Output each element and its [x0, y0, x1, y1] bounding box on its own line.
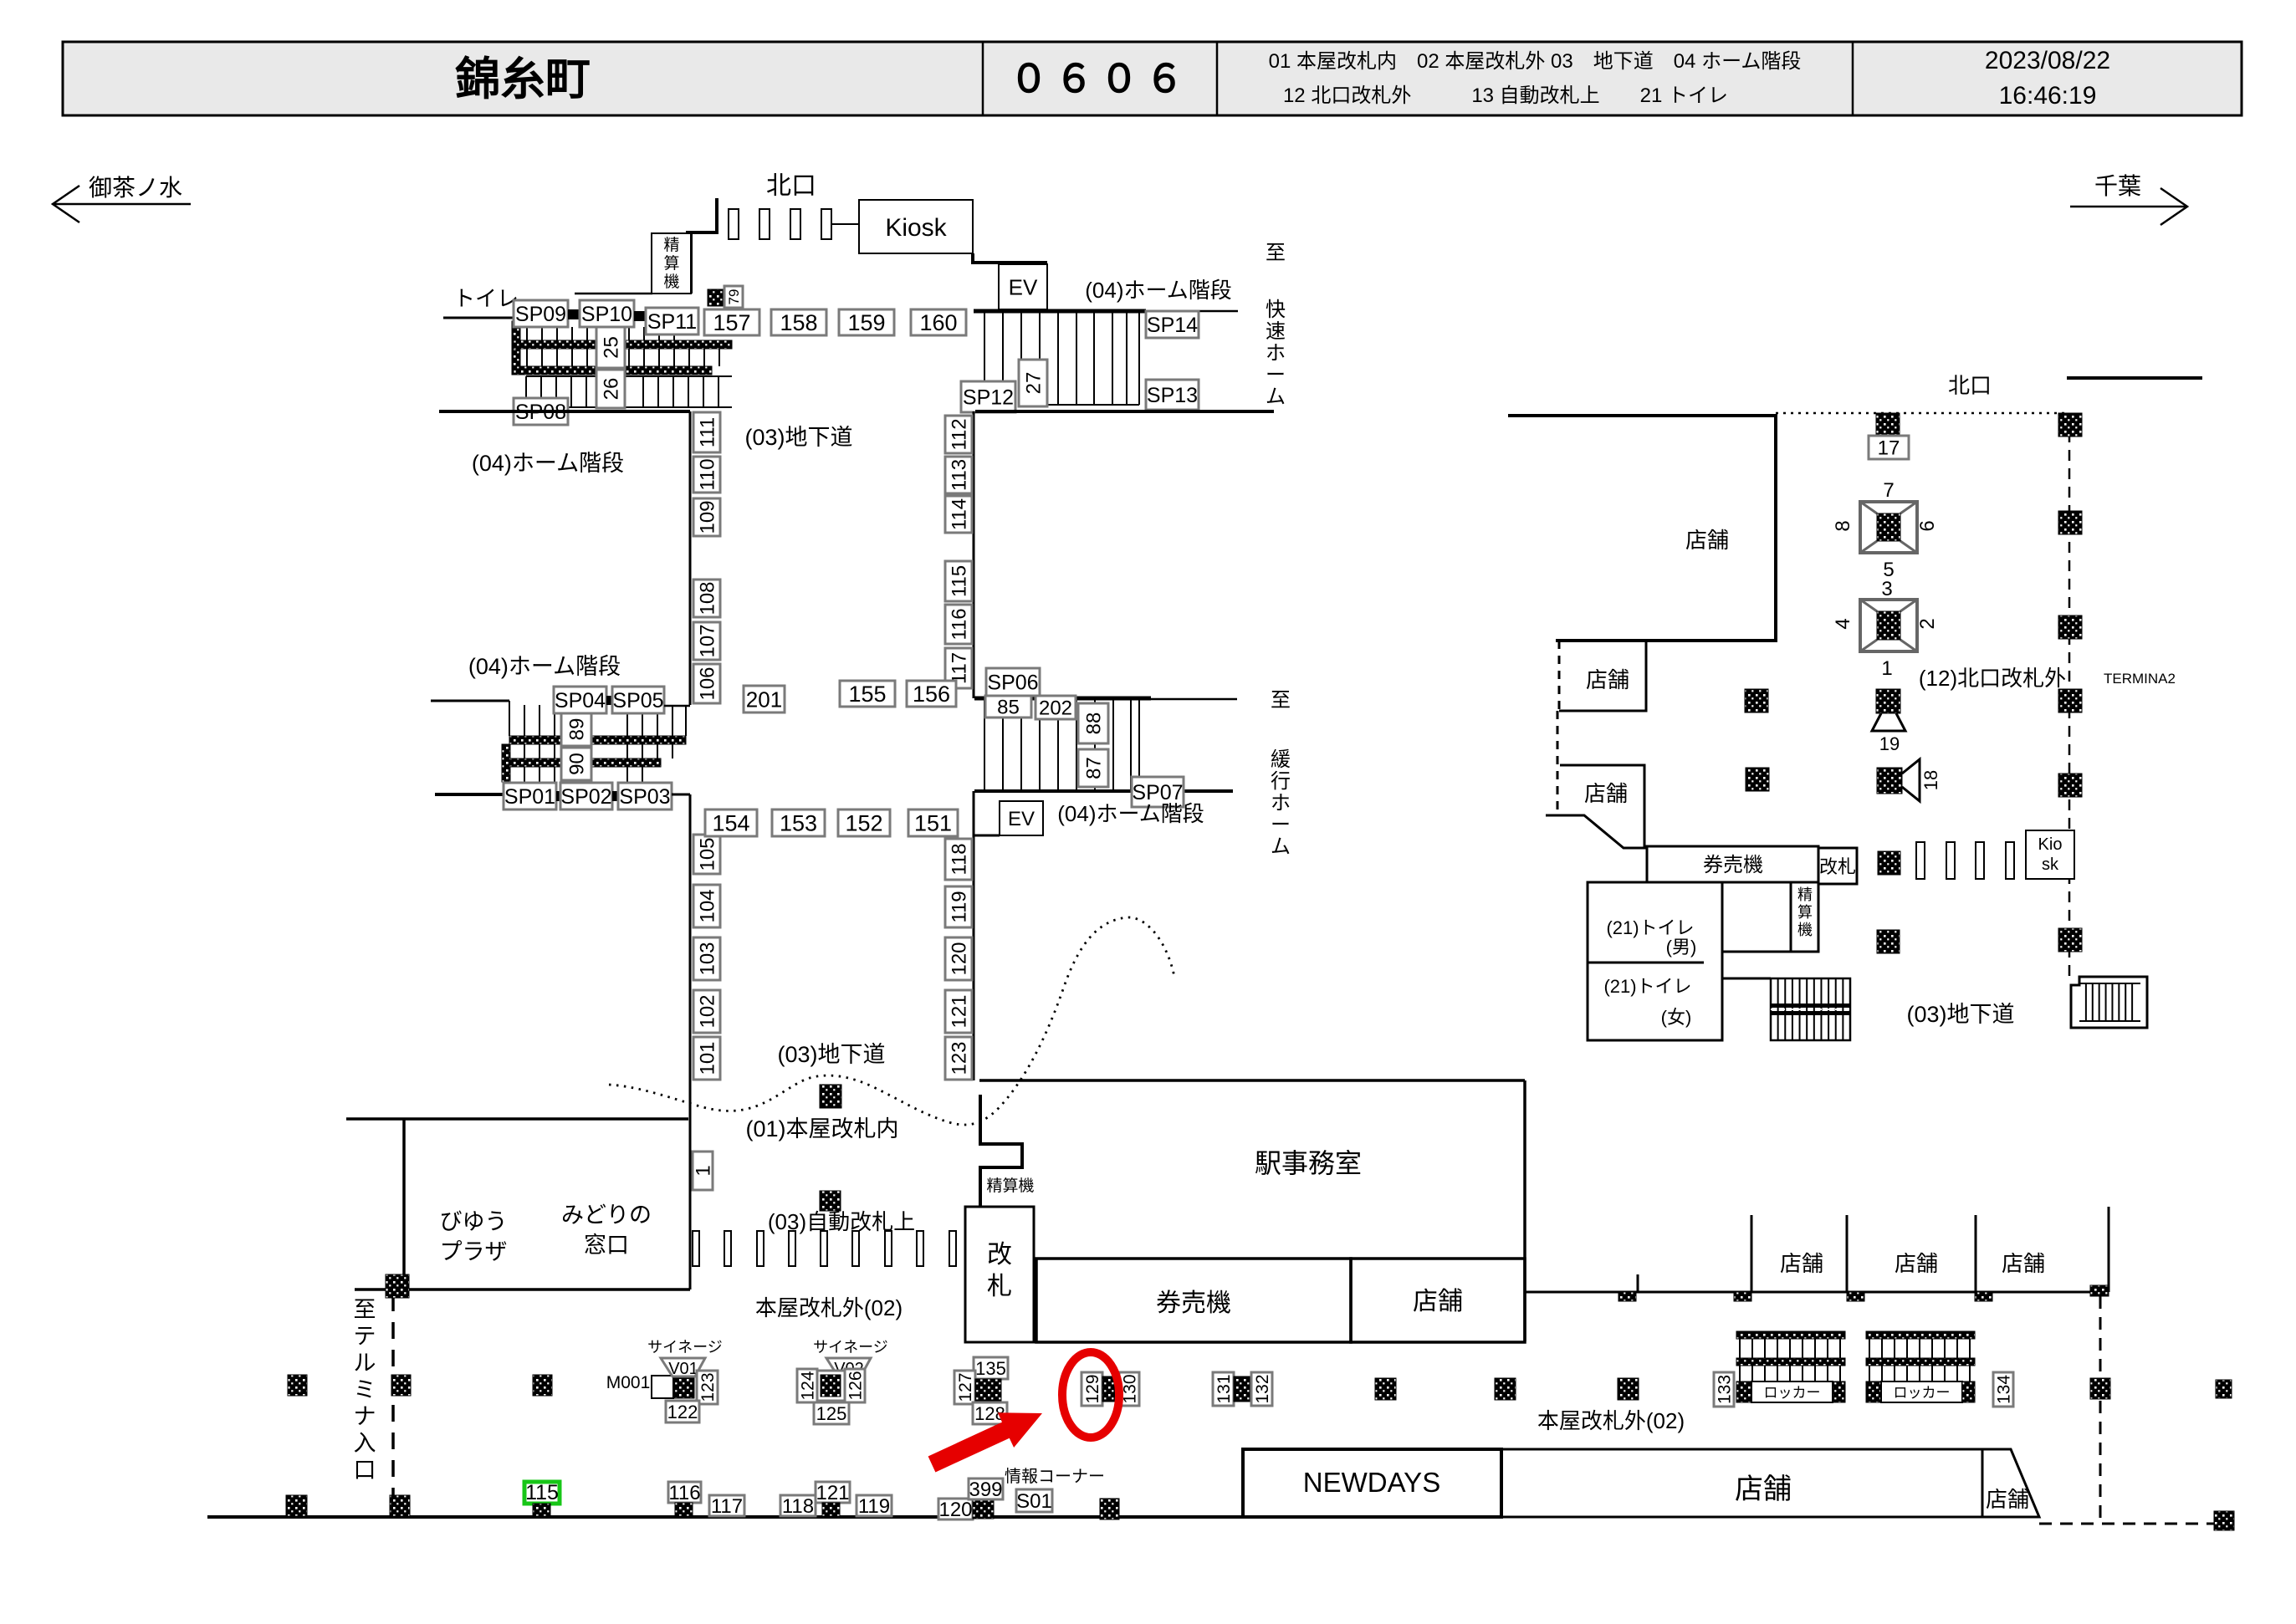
- svg-text:1: 1: [693, 1165, 715, 1176]
- svg-text:12 北口改札外 13 自動改札上 21 トイレ: 12 北口改札外 13 自動改札上 21 トイレ: [1283, 84, 1728, 107]
- svg-text:160: 160: [919, 310, 957, 335]
- svg-text:店舗: 店舗: [1986, 1487, 2029, 1512]
- svg-text:SP02: SP02: [560, 785, 611, 809]
- svg-text:3: 3: [1881, 578, 1892, 600]
- svg-text:千葉: 千葉: [2094, 173, 2141, 199]
- svg-text:御茶ノ水: 御茶ノ水: [89, 175, 182, 201]
- svg-text:122: 122: [667, 1402, 698, 1422]
- svg-text:201: 201: [746, 687, 782, 712]
- svg-text:SP05: SP05: [612, 689, 663, 712]
- svg-text:117: 117: [949, 652, 971, 684]
- svg-text:至: 至: [354, 1297, 376, 1322]
- svg-text:151: 151: [914, 811, 952, 836]
- svg-text:109: 109: [697, 500, 719, 534]
- svg-text:算: 算: [663, 254, 679, 273]
- svg-text:SP04: SP04: [555, 689, 606, 712]
- svg-text:SP09: SP09: [515, 303, 566, 326]
- svg-text:(男): (男): [1666, 937, 1697, 958]
- svg-text:(21)トイレ: (21)トイレ: [1606, 917, 1694, 938]
- svg-text:115: 115: [949, 565, 971, 597]
- svg-text:TERMINA2: TERMINA2: [2104, 671, 2176, 687]
- svg-text:機: 機: [1797, 922, 1813, 938]
- svg-text:105: 105: [697, 837, 719, 871]
- svg-text:27: 27: [1023, 372, 1046, 395]
- svg-text:116: 116: [668, 1482, 700, 1504]
- svg-text:119: 119: [858, 1495, 890, 1518]
- svg-text:びゆう: びゆう: [440, 1209, 508, 1234]
- svg-text:Kio: Kio: [2038, 835, 2063, 854]
- svg-text:(03)地下道: (03)地下道: [1906, 1002, 2014, 1027]
- svg-text:サイネージ: サイネージ: [813, 1339, 888, 1356]
- svg-text:至: 至: [1271, 689, 1291, 712]
- svg-text:SP11: SP11: [647, 310, 697, 334]
- svg-text:1: 1: [1881, 657, 1892, 680]
- svg-text:店舗: 店舗: [1413, 1288, 1463, 1315]
- svg-text:SP12: SP12: [963, 386, 1014, 410]
- svg-text:104: 104: [697, 889, 719, 922]
- svg-text:EV: EV: [1009, 274, 1038, 299]
- svg-text:6: 6: [1916, 520, 1939, 531]
- svg-text:錦糸町: 錦糸町: [455, 54, 591, 105]
- svg-text:8: 8: [1832, 520, 1854, 531]
- svg-text:プラザ: プラザ: [440, 1239, 508, 1264]
- svg-text:店舗: 店舗: [1735, 1473, 1792, 1505]
- svg-text:85: 85: [997, 697, 1020, 719]
- svg-text:S01: S01: [1016, 1490, 1052, 1513]
- svg-text:159: 159: [847, 310, 885, 335]
- svg-text:19: 19: [1879, 733, 1900, 754]
- svg-text:ホ: ホ: [1271, 792, 1291, 815]
- svg-text:131: 131: [1214, 1374, 1234, 1403]
- svg-text:機: 機: [663, 273, 679, 291]
- svg-text:121: 121: [816, 1482, 849, 1504]
- svg-text:SP13: SP13: [1147, 384, 1198, 407]
- svg-text:154: 154: [712, 811, 749, 836]
- svg-text:ー: ー: [1271, 814, 1291, 836]
- svg-text:SP14: SP14: [1147, 314, 1198, 337]
- svg-text:125: 125: [816, 1403, 847, 1424]
- svg-text:ロッカー: ロッカー: [1764, 1385, 1821, 1401]
- svg-text:改札: 改札: [1819, 856, 1856, 877]
- svg-text:106: 106: [697, 666, 719, 700]
- svg-text:202: 202: [1039, 697, 1072, 720]
- svg-text:ホ: ホ: [1266, 342, 1286, 365]
- svg-text:16:46:19: 16:46:19: [1999, 82, 2097, 110]
- svg-text:118: 118: [782, 1495, 814, 1518]
- svg-text:精算機: 精算機: [986, 1177, 1034, 1195]
- svg-text:108: 108: [697, 581, 719, 615]
- svg-text:北口: 北口: [766, 172, 816, 200]
- svg-text:121: 121: [949, 994, 971, 1028]
- svg-text:速: 速: [1266, 320, 1286, 343]
- svg-text:本屋改札外(02): 本屋改札外(02): [1537, 1408, 1685, 1433]
- svg-text:(03)地下道: (03)地下道: [744, 425, 852, 450]
- svg-text:Kiosk: Kiosk: [885, 214, 947, 242]
- svg-text:90: 90: [566, 753, 589, 775]
- svg-text:119: 119: [949, 891, 971, 922]
- svg-text:18: 18: [1920, 770, 1941, 790]
- svg-text:行: 行: [1271, 770, 1291, 793]
- svg-text:SP03: SP03: [619, 785, 670, 809]
- svg-text:157: 157: [713, 310, 750, 335]
- svg-text:サイネージ: サイネージ: [647, 1339, 723, 1356]
- svg-text:79: 79: [726, 289, 742, 305]
- svg-text:103: 103: [697, 942, 719, 975]
- svg-text:112: 112: [949, 418, 971, 450]
- svg-text:88: 88: [1083, 712, 1106, 735]
- svg-text:窓口: 窓口: [584, 1233, 629, 1258]
- svg-text:(04)ホーム階段: (04)ホーム階段: [472, 451, 624, 476]
- svg-text:ー: ー: [1266, 364, 1286, 386]
- svg-text:口: 口: [354, 1458, 376, 1483]
- svg-text:110: 110: [697, 458, 719, 490]
- svg-text:SP01: SP01: [504, 785, 555, 809]
- svg-text:改: 改: [987, 1241, 1012, 1269]
- svg-text:ナ: ナ: [354, 1404, 376, 1429]
- svg-text:みどりの: みどりの: [561, 1203, 652, 1228]
- svg-text:駅事務室: 駅事務室: [1255, 1148, 1362, 1178]
- svg-text:券売機: 券売機: [1156, 1289, 1231, 1317]
- svg-text:129: 129: [1083, 1374, 1102, 1403]
- svg-text:(04)ホーム階段: (04)ホーム階段: [468, 654, 621, 679]
- svg-text:87: 87: [1083, 757, 1106, 779]
- svg-text:(女): (女): [1661, 1007, 1692, 1028]
- svg-text:sk: sk: [2042, 855, 2059, 874]
- svg-text:120: 120: [949, 942, 971, 975]
- svg-text:153: 153: [780, 811, 817, 836]
- svg-text:26: 26: [601, 378, 623, 401]
- svg-text:SP06: SP06: [987, 672, 1038, 695]
- svg-text:快: 快: [1266, 299, 1286, 321]
- svg-text:EV: EV: [1008, 808, 1035, 830]
- svg-text:115: 115: [525, 1481, 559, 1504]
- svg-text:126: 126: [846, 1371, 866, 1400]
- svg-text:ム: ム: [1271, 835, 1291, 858]
- svg-text:399: 399: [969, 1478, 1002, 1501]
- svg-text:(04)ホーム階段: (04)ホーム階段: [1057, 801, 1204, 826]
- svg-text:132: 132: [1253, 1374, 1272, 1403]
- svg-text:ム: ム: [1266, 386, 1286, 408]
- svg-text:120: 120: [938, 1499, 972, 1521]
- svg-text:店舗: 店舗: [1685, 528, 1729, 553]
- svg-text:01 本屋改札内 02 本屋改札外 03 地下道 04 ホー: 01 本屋改札内 02 本屋改札外 03 地下道 04 ホーム階段: [1269, 50, 1802, 73]
- svg-text:114: 114: [949, 498, 971, 530]
- svg-text:ミ: ミ: [354, 1377, 376, 1402]
- svg-text:緩: 緩: [1271, 748, 1291, 771]
- svg-text:SP10: SP10: [581, 303, 632, 326]
- svg-text:25: 25: [601, 336, 623, 359]
- svg-text:158: 158: [780, 310, 817, 335]
- svg-text:123: 123: [698, 1372, 718, 1402]
- svg-text:北口: 北口: [1948, 373, 1992, 398]
- svg-text:ロッカー: ロッカー: [1894, 1385, 1951, 1401]
- svg-text:テ: テ: [354, 1324, 376, 1349]
- svg-text:111: 111: [697, 417, 719, 447]
- svg-text:精: 精: [663, 236, 679, 254]
- svg-text:ル: ル: [354, 1351, 376, 1376]
- svg-text:2023/08/22: 2023/08/22: [1985, 47, 2110, 74]
- svg-text:127: 127: [956, 1372, 975, 1402]
- svg-text:NEWDAYS: NEWDAYS: [1303, 1467, 1440, 1498]
- svg-text:店舗: 店舗: [1780, 1251, 1823, 1276]
- svg-text:124: 124: [799, 1371, 818, 1400]
- svg-text:113: 113: [949, 459, 971, 491]
- svg-text:135: 135: [975, 1358, 1006, 1379]
- svg-text:情報コーナー: 情報コーナー: [1005, 1467, 1105, 1486]
- svg-text:123: 123: [949, 1041, 971, 1075]
- svg-text:店舗: 店舗: [1895, 1251, 1938, 1276]
- svg-text:札: 札: [987, 1273, 1012, 1300]
- svg-text:17: 17: [1878, 437, 1900, 460]
- svg-text:7: 7: [1883, 479, 1894, 502]
- svg-text:152: 152: [845, 811, 882, 836]
- svg-text:2: 2: [1916, 618, 1939, 629]
- svg-text:134: 134: [1995, 1375, 2014, 1404]
- svg-text:101: 101: [697, 1041, 719, 1075]
- svg-text:4: 4: [1832, 618, 1854, 629]
- svg-text:(01)本屋改札内: (01)本屋改札内: [745, 1116, 898, 1141]
- svg-text:入: 入: [354, 1431, 376, 1456]
- svg-text:券売機: 券売機: [1703, 854, 1763, 876]
- svg-text:102: 102: [697, 994, 719, 1028]
- svg-text:M001: M001: [606, 1373, 651, 1392]
- svg-text:(21)トイレ: (21)トイレ: [1603, 976, 1691, 997]
- svg-text:V01: V01: [668, 1360, 698, 1378]
- svg-text:(12)北口改札外: (12)北口改札外: [1919, 666, 2066, 691]
- svg-text:116: 116: [949, 608, 971, 640]
- svg-text:０６０６: ０６０６: [1010, 57, 1190, 100]
- svg-text:89: 89: [566, 718, 589, 741]
- svg-text:133: 133: [1716, 1375, 1735, 1404]
- svg-text:130: 130: [1121, 1374, 1140, 1403]
- svg-text:店舗: 店舗: [2002, 1251, 2045, 1276]
- svg-text:118: 118: [949, 843, 971, 875]
- svg-text:107: 107: [697, 624, 719, 657]
- svg-text:精: 精: [1797, 886, 1813, 903]
- svg-text:(03)地下道: (03)地下道: [777, 1042, 885, 1067]
- svg-text:店舗: 店舗: [1586, 667, 1629, 692]
- svg-text:117: 117: [711, 1495, 743, 1518]
- svg-text:本屋改札外(02): 本屋改札外(02): [755, 1295, 903, 1320]
- svg-text:(04)ホーム階段: (04)ホーム階段: [1085, 278, 1231, 303]
- svg-text:155: 155: [848, 682, 886, 707]
- svg-text:店舗: 店舗: [1584, 781, 1628, 806]
- svg-text:至: 至: [1266, 242, 1286, 264]
- svg-text:算: 算: [1797, 904, 1813, 921]
- svg-text:156: 156: [913, 682, 950, 707]
- svg-text:トイレ: トイレ: [453, 286, 519, 311]
